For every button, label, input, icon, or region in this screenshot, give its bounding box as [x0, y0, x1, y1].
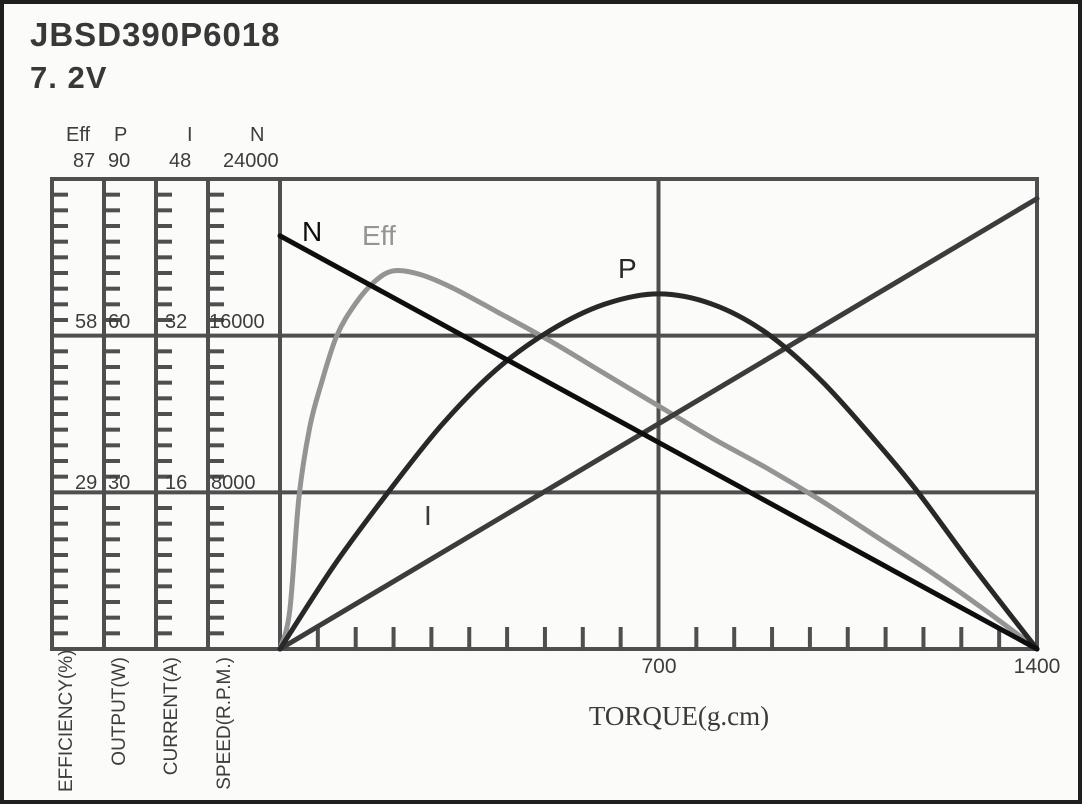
axis-low-Eff: 29: [75, 472, 97, 495]
axis-max-P: 90: [108, 150, 130, 173]
axis-mid-Eff: 58: [75, 311, 97, 334]
axis-unit-I: CURRENT(A): [161, 657, 183, 792]
axis-low-N: 8000: [211, 472, 256, 495]
x-tick-label-700: 700: [629, 655, 689, 679]
axis-name-I: I: [187, 124, 193, 147]
axis-low-P: 30: [108, 472, 130, 495]
axis-unit-N: SPEED(R.P.M.): [214, 657, 236, 792]
axis-max-I: 48: [169, 150, 191, 173]
curve-label-speed: N: [302, 216, 322, 248]
axis-mid-N: 16000: [209, 311, 265, 334]
curve-label-current: I: [424, 500, 432, 532]
axis-mid-P: 60: [108, 311, 130, 334]
axis-unit-Eff: EFFICIENCY(%): [56, 657, 78, 792]
x-tick-label-1400: 1400: [1007, 655, 1067, 679]
axis-name-N: N: [250, 124, 264, 147]
axis-name-P: P: [114, 124, 127, 147]
axis-max-N: 24000: [223, 150, 279, 173]
axis-name-Eff: Eff: [66, 124, 90, 147]
chart-page: JBSD390P6018 7. 2V Eff875829EFFICIENCY(%…: [0, 0, 1082, 804]
curve-label-power: P: [618, 253, 637, 285]
axis-unit-P: OUTPUT(W): [109, 657, 131, 792]
x-axis-title: TORQUE(g.cm): [564, 701, 794, 732]
axis-mid-I: 32: [165, 311, 187, 334]
curve-label-eff: Eff: [362, 220, 396, 252]
axis-max-Eff: 87: [73, 150, 95, 173]
axis-low-I: 16: [165, 472, 187, 495]
